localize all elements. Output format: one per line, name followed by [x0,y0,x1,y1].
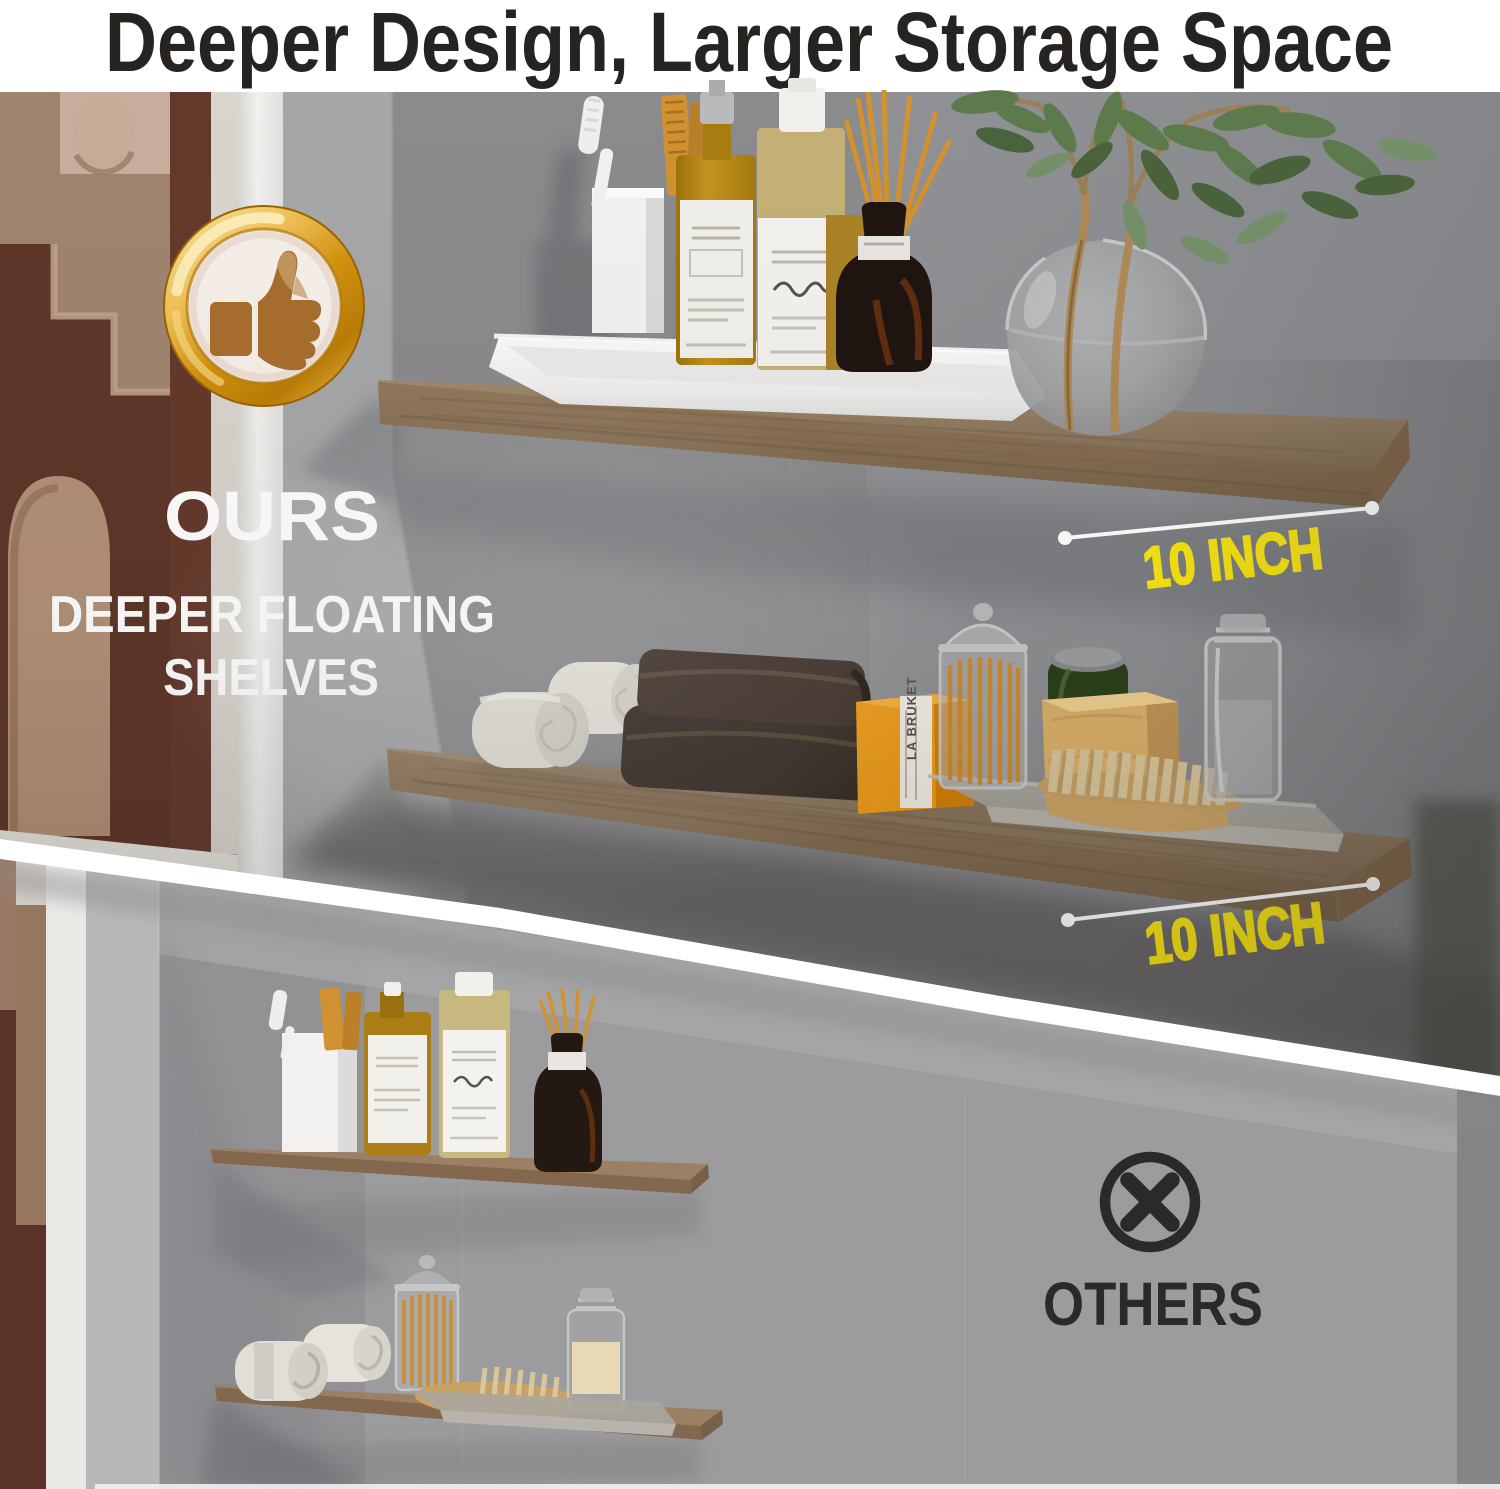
svg-text:OTHERS: OTHERS [1043,1270,1263,1338]
svg-text:Deeper Design, Larger Storage: Deeper Design, Larger Storage Space [105,0,1393,89]
